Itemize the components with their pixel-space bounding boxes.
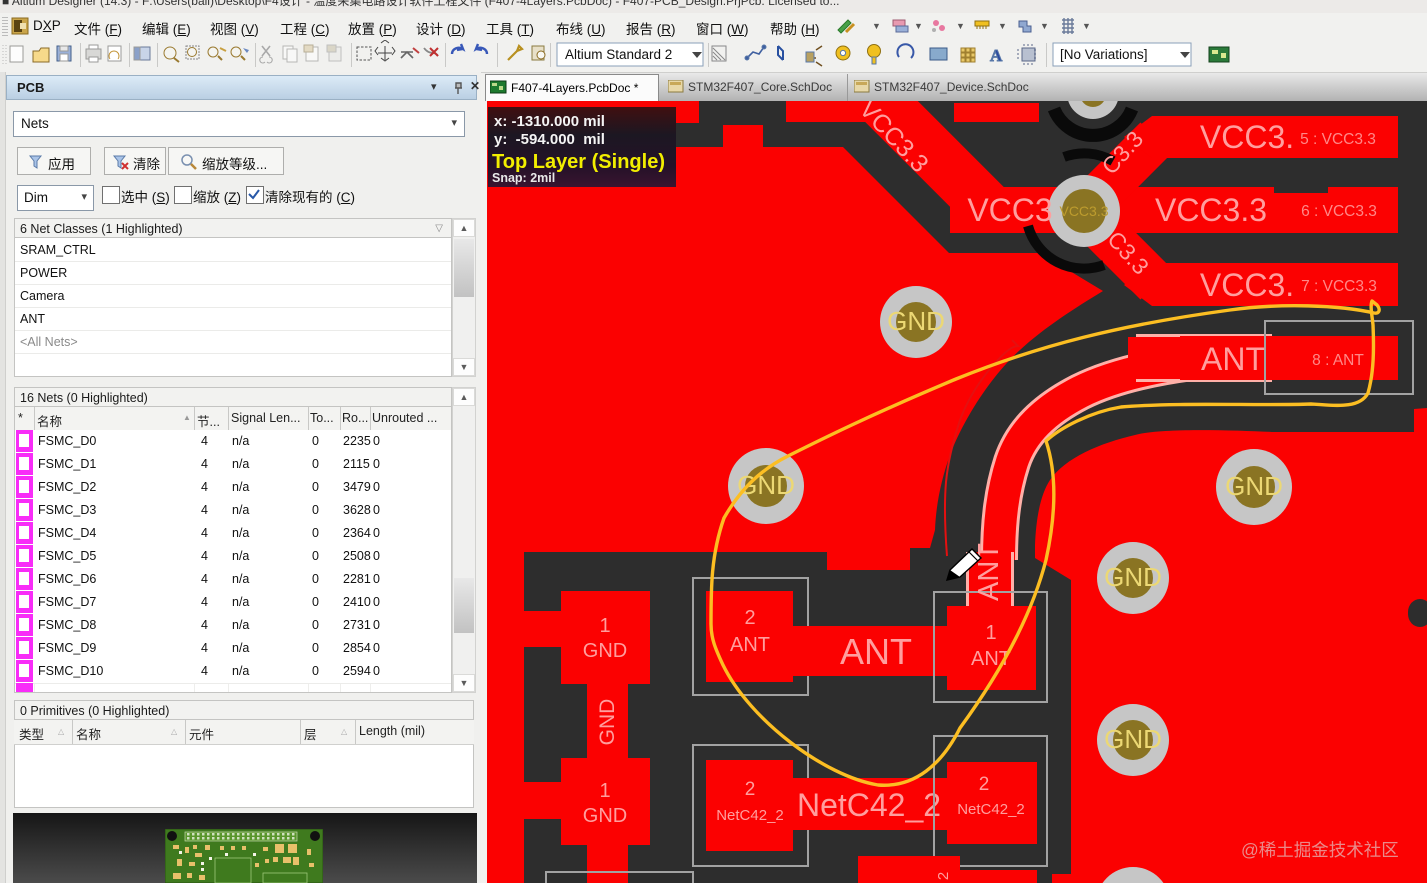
svg-text:VCC3.3: VCC3.3	[1155, 192, 1267, 228]
svg-text:1: 1	[599, 780, 610, 802]
svg-text:GND: GND	[583, 805, 627, 827]
svg-text:GND: GND	[583, 640, 627, 662]
svg-text:[No Variations]: [No Variations]	[1060, 47, 1148, 62]
svg-text:VCC3: VCC3	[967, 192, 1052, 228]
svg-text:6 : VCC3.3: 6 : VCC3.3	[1301, 203, 1377, 220]
svg-text:x: -1310.000 mil: x: -1310.000 mil	[494, 113, 605, 130]
svg-text:▼: ▼	[1040, 21, 1049, 31]
svg-text:▼: ▼	[1082, 21, 1091, 31]
svg-text:1: 1	[985, 622, 996, 644]
svg-text:▼: ▼	[914, 21, 923, 31]
svg-text:Altium Standard 2: Altium Standard 2	[565, 47, 672, 62]
svg-text:ANT: ANT	[840, 631, 912, 672]
svg-text:GND: GND	[1225, 471, 1283, 501]
svg-text:▼: ▼	[872, 21, 881, 31]
svg-text:▼: ▼	[998, 21, 1007, 31]
svg-text:5 : VCC3.3: 5 : VCC3.3	[1300, 131, 1376, 148]
svg-text:VCC3.3: VCC3.3	[1059, 203, 1108, 219]
svg-text:y: -594.000 mil: y: -594.000 mil	[494, 131, 605, 148]
svg-text:GND: GND	[1104, 724, 1162, 754]
svg-text:2: 2	[979, 774, 990, 795]
svg-text:ANT: ANT	[973, 543, 1005, 601]
svg-text:7 : VCC3.3: 7 : VCC3.3	[1301, 278, 1377, 295]
svg-text:GND: GND	[1104, 562, 1162, 592]
svg-text:2: 2	[935, 872, 952, 880]
svg-text:NetC42_2: NetC42_2	[797, 787, 941, 823]
svg-text:Snap: 2mil: Snap: 2mil	[492, 171, 555, 185]
svg-text:8 : ANT: 8 : ANT	[1312, 352, 1364, 369]
svg-text:NetC42_2: NetC42_2	[716, 807, 784, 824]
svg-text:VCC3.: VCC3.	[1200, 267, 1294, 303]
svg-text:ANT: ANT	[1201, 341, 1265, 377]
svg-text:@稀土掘金技术社区: @稀土掘金技术社区	[1241, 840, 1399, 860]
svg-text:2: 2	[745, 779, 756, 800]
svg-text:ANT: ANT	[730, 634, 770, 656]
svg-text:1: 1	[599, 615, 610, 637]
svg-text:GND: GND	[596, 699, 619, 746]
svg-text:▼: ▼	[956, 21, 965, 31]
svg-text:2: 2	[744, 607, 755, 629]
svg-text:Top Layer (Single): Top Layer (Single)	[492, 151, 665, 173]
svg-text:GND: GND	[887, 306, 945, 336]
svg-text:A: A	[990, 46, 1003, 65]
svg-text:NetC42_2: NetC42_2	[957, 801, 1025, 818]
svg-text:VCC3.: VCC3.	[1200, 119, 1294, 155]
svg-text:GND: GND	[737, 470, 795, 500]
